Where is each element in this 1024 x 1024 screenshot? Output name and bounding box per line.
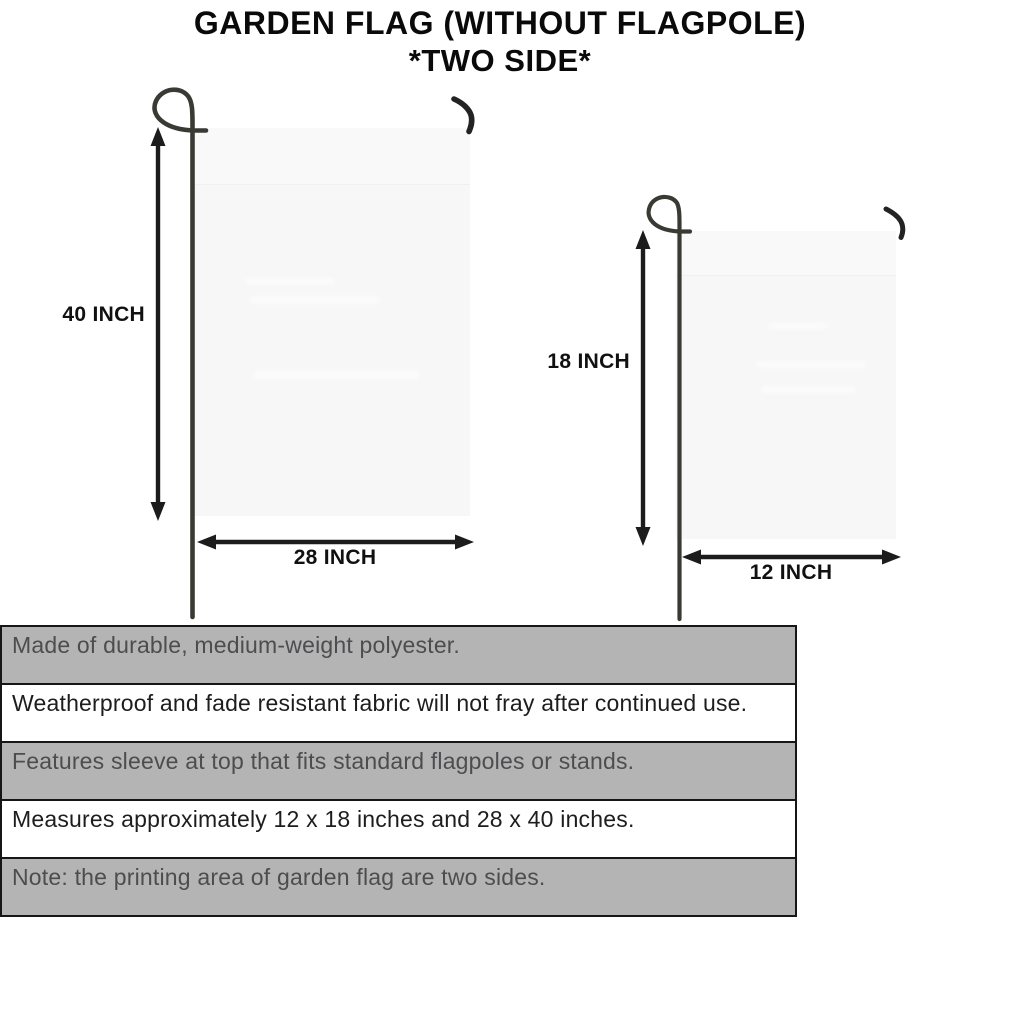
feature-text: Note: the printing area of garden flag a… [12, 864, 546, 890]
feature-row: Weatherproof and fade resistant fabric w… [2, 683, 795, 741]
flag-fabric-streak [761, 386, 856, 393]
garden-flag-infographic: GARDEN FLAG (WITHOUT FLAGPOLE) *TWO SIDE… [0, 0, 1024, 1024]
page-title: GARDEN FLAG (WITHOUT FLAGPOLE) [0, 4, 1000, 42]
large-flag-width-label: 28 INCH [235, 546, 435, 570]
feature-row: Note: the printing area of garden flag a… [2, 857, 795, 915]
flag-fabric-streak [245, 278, 335, 285]
large-flag-sleeve [192, 128, 470, 185]
feature-text: Weatherproof and fade resistant fabric w… [12, 690, 747, 716]
arrowhead-left-icon [197, 535, 216, 550]
page-subtitle: *TWO SIDE* [0, 42, 1000, 80]
arrowhead-right-icon [455, 535, 474, 550]
feature-text: Features sleeve at top that fits standar… [12, 748, 634, 774]
flag-fabric-streak [756, 361, 866, 368]
small-flag-width-label: 12 INCH [691, 561, 891, 585]
arrowhead-up-icon [636, 230, 651, 249]
arrowhead-down-icon [636, 527, 651, 546]
flag-fabric-streak [768, 323, 828, 329]
small-flag-sleeve [676, 231, 896, 276]
feature-row: Made of durable, medium-weight polyester… [2, 627, 795, 683]
feature-text: Made of durable, medium-weight polyester… [12, 632, 460, 658]
arrowhead-down-icon [151, 502, 166, 521]
flag-fabric-streak [254, 370, 419, 379]
large-flag-hook-icon [454, 99, 472, 132]
flag-fabric-streak [250, 296, 380, 304]
arrowhead-up-icon [151, 127, 166, 146]
small-flag [676, 231, 896, 539]
features-table: Made of durable, medium-weight polyester… [0, 625, 797, 917]
small-flag-height-arrow [636, 230, 651, 546]
feature-row: Measures approximately 12 x 18 inches an… [2, 799, 795, 857]
small-flag-height-label: 18 INCH [540, 350, 630, 374]
large-flag-height-arrow [151, 127, 166, 521]
feature-row: Features sleeve at top that fits standar… [2, 741, 795, 799]
large-flag [192, 128, 470, 516]
title-block: GARDEN FLAG (WITHOUT FLAGPOLE) *TWO SIDE… [0, 4, 1000, 80]
feature-text: Measures approximately 12 x 18 inches an… [12, 806, 635, 832]
large-flag-height-label: 40 INCH [50, 303, 145, 327]
